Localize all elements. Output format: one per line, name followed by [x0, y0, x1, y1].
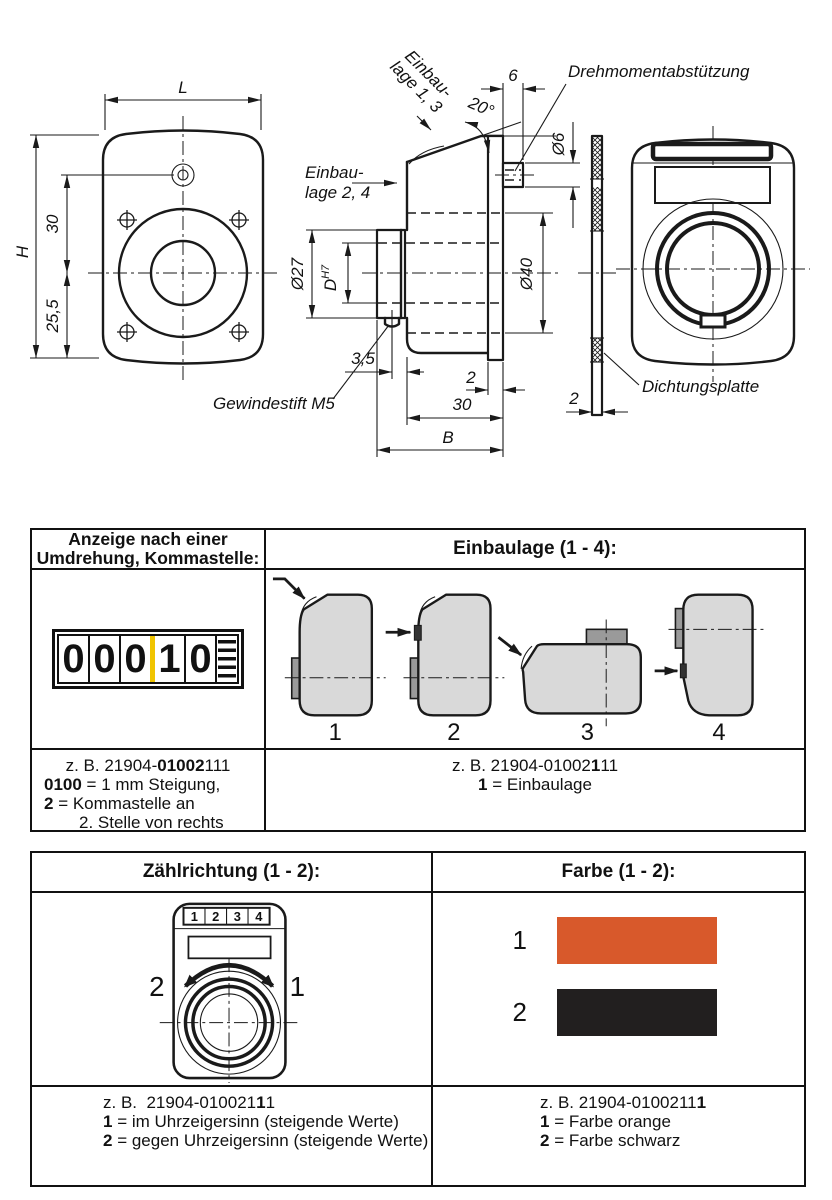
example-order-code-direction: z. B. 21904-01002111 1 = im Uhrzeigersin…: [32, 1087, 433, 1185]
direction-2-label: 2: [149, 971, 164, 1002]
dim-25-5: 25,5: [43, 299, 62, 334]
table-display-mounting: Anzeige nach einer Umdrehung, Kommastell…: [30, 528, 806, 832]
display-slot: [653, 144, 771, 159]
color-option-orange: 1: [503, 917, 804, 964]
dim-d27: Ø27: [288, 257, 307, 291]
counter-digit: 0: [119, 636, 150, 682]
dim-B: B: [442, 428, 453, 447]
example-order-code-mounting: z. B. 21904-01002111 1 = Einbaulage: [266, 750, 804, 830]
example-order-code-color: z. B. 21904-01002111 1 = Farbe orange 2 …: [433, 1087, 804, 1185]
counter-display: 0 0 0 1 0: [52, 629, 244, 689]
mounting-position-24-label2: lage 2, 4: [305, 183, 370, 202]
window-digit: 3: [234, 909, 241, 924]
header-farbe: Farbe (1 - 2):: [433, 853, 804, 893]
rear-view: [616, 126, 810, 382]
front-view: L H 30 25,5: [13, 78, 278, 380]
position-2: 2: [386, 595, 505, 746]
window-digit: 1: [191, 909, 198, 924]
color-cell: 1 2: [433, 893, 804, 1087]
position-1: 1: [273, 579, 386, 746]
position-1-label: 1: [329, 720, 342, 746]
table-direction-color: Zählrichtung (1 - 2): Farbe (1 - 2):: [30, 851, 806, 1187]
direction-1-label: 1: [290, 971, 305, 1002]
dim-L: L: [178, 78, 187, 97]
dim-H: H: [13, 245, 32, 258]
black-swatch: [557, 989, 717, 1036]
header-einbaulage: Einbaulage (1 - 4):: [266, 530, 804, 570]
mounting-position-24-label: Einbau-: [305, 163, 364, 182]
counter-digit: 0: [184, 636, 215, 682]
counter-digit-comma: 1: [150, 636, 184, 682]
dim-30-front: 30: [43, 214, 62, 233]
knob-tab: [701, 315, 725, 327]
dim-d40: Ø40: [517, 257, 536, 291]
position-2-label: 2: [447, 720, 460, 746]
datasheet-page: L H 30 25,5: [0, 0, 832, 1200]
position-4: 4: [655, 595, 766, 746]
window-digit: 4: [255, 909, 263, 924]
torque-support-label: Drehmomentabstützung: [568, 62, 750, 81]
position-3-label: 3: [581, 720, 594, 746]
position-3: 3: [498, 619, 640, 746]
indicator-front-drawing: 1 2 3 4: [160, 904, 299, 1083]
orange-swatch: [557, 917, 717, 964]
example-order-code-display: z. B. 21904-01002111 0100 = 1 mm Steigun…: [32, 750, 266, 830]
header-anzeige: Anzeige nach einer Umdrehung, Kommastell…: [32, 530, 266, 570]
technical-drawing: L H 30 25,5: [0, 0, 832, 515]
color-option-black: 2: [503, 989, 804, 1036]
counter-digit: 0: [59, 636, 88, 682]
counter-cell: 0 0 0 1 0: [32, 570, 266, 750]
setscrew-label: Gewindestift M5: [213, 394, 335, 413]
dim-D-H7: DH7: [320, 264, 340, 291]
dim-angle-20: 20°: [465, 93, 497, 121]
header-zaehlrichtung: Zählrichtung (1 - 2):: [32, 853, 433, 893]
counter-digit: 0: [88, 636, 119, 682]
window-digit: 2: [212, 909, 219, 924]
dim-6: 6: [508, 66, 518, 85]
position-4-label: 4: [712, 720, 725, 746]
mounting-positions-cell: 1 2 3: [266, 570, 804, 750]
dim-2-flange: 2: [465, 368, 476, 387]
dim-30-side: 30: [453, 395, 472, 414]
dim-2-gasket: 2: [568, 389, 579, 408]
label-window: [655, 167, 770, 203]
counter-knurl-icon: [215, 636, 237, 682]
direction-cell: 1 2 3 4 2 1: [32, 893, 433, 1087]
gasket-label: Dichtungsplatte: [642, 377, 759, 396]
